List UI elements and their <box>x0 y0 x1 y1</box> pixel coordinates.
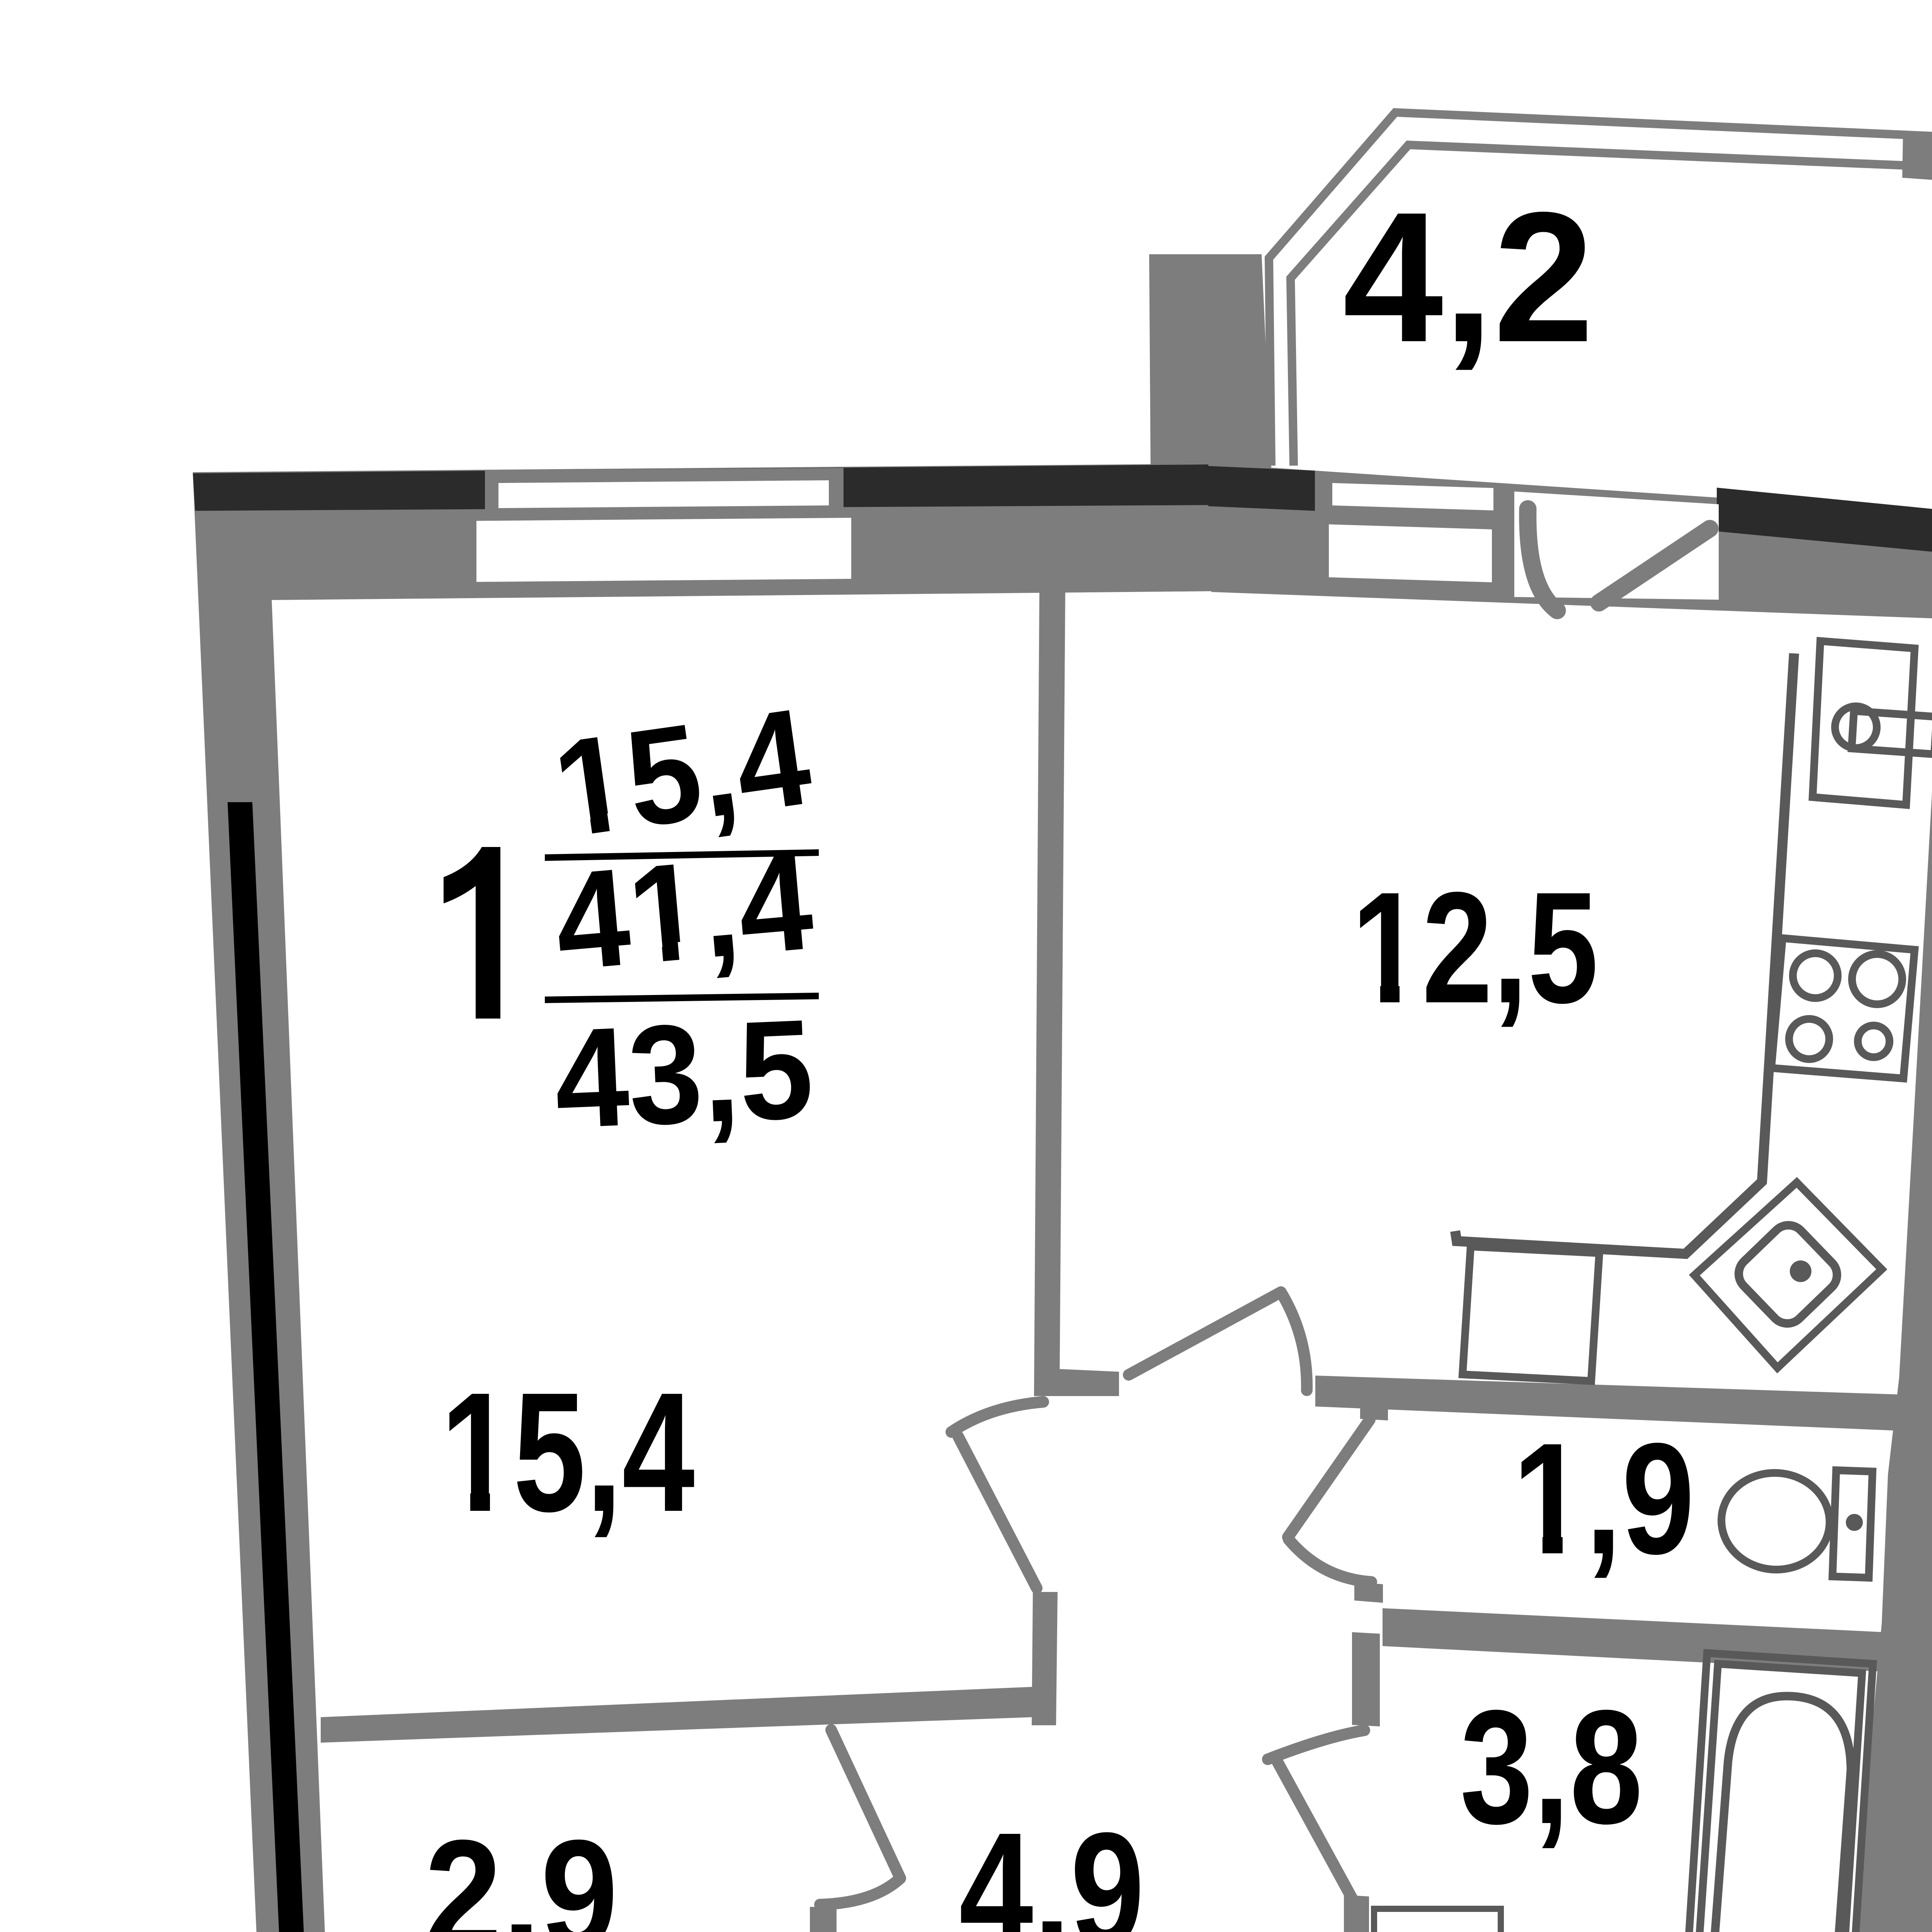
svg-text:4,9: 4,9 <box>959 1799 1145 1932</box>
svg-text:1,9: 1,9 <box>1513 1410 1695 1587</box>
svg-text:2,9: 2,9 <box>425 1808 618 1932</box>
svg-text:43,5: 43,5 <box>552 990 816 1158</box>
svg-text:15,4: 15,4 <box>440 1357 696 1547</box>
svg-text:4,2: 4,2 <box>1343 173 1594 381</box>
svg-text:12,5: 12,5 <box>1352 859 1599 1036</box>
svg-text:41,4: 41,4 <box>549 823 819 1000</box>
svg-text:3,8: 3,8 <box>1460 1677 1643 1858</box>
